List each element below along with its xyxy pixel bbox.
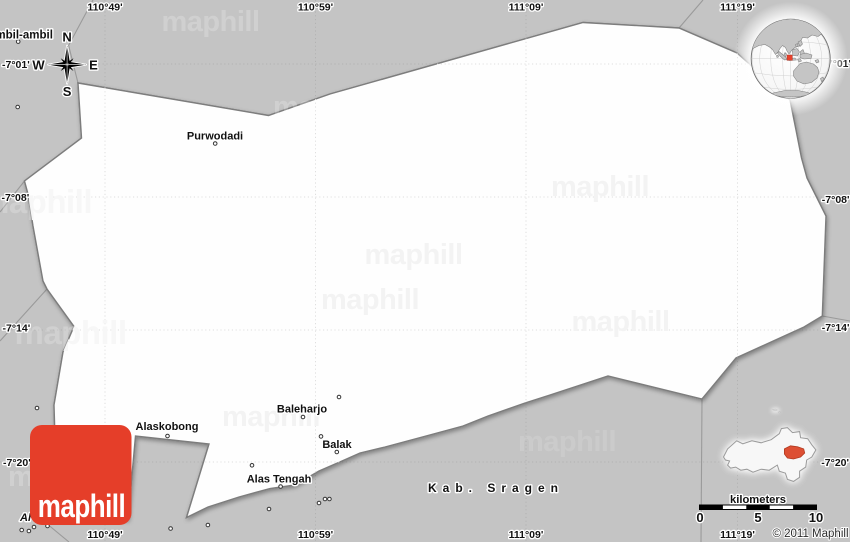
svg-text:Alaskobong: Alaskobong <box>136 421 199 433</box>
svg-text:5: 5 <box>754 510 761 525</box>
svg-text:maphill: maphill <box>273 91 371 123</box>
svg-text:maphill: maphill <box>321 284 419 316</box>
svg-text:111°09': 111°09' <box>509 2 544 14</box>
svg-text:S: S <box>63 84 72 99</box>
svg-text:-7°20': -7°20' <box>3 457 31 469</box>
svg-text:Balak: Balak <box>322 439 352 451</box>
svg-text:-7°20': -7°20' <box>821 457 849 469</box>
svg-text:ambil-ambil: ambil-ambil <box>0 30 53 42</box>
svg-text:110°49': 110°49' <box>87 2 122 14</box>
svg-text:0: 0 <box>696 510 703 525</box>
svg-text:maphill: maphill <box>38 488 125 524</box>
svg-text:111°19': 111°19' <box>720 529 755 541</box>
svg-text:Purwodadi: Purwodadi <box>187 131 243 143</box>
svg-text:Alas Tengah: Alas Tengah <box>247 474 312 486</box>
svg-text:110°59': 110°59' <box>298 529 333 541</box>
svg-text:Al: Al <box>19 512 32 524</box>
svg-text:maphill: maphill <box>551 171 649 203</box>
svg-text:10: 10 <box>809 510 823 525</box>
svg-text:maphill: maphill <box>518 426 616 458</box>
svg-text:N: N <box>62 30 71 45</box>
svg-text:© 2011 Maphill: © 2011 Maphill <box>772 528 848 540</box>
svg-text:maphill: maphill <box>161 6 259 38</box>
svg-text:-7°01': -7°01' <box>2 59 30 71</box>
svg-text:-7°14': -7°14' <box>3 323 31 335</box>
svg-text:110°59': 110°59' <box>298 2 333 14</box>
svg-text:maphill: maphill <box>14 314 126 351</box>
svg-text:111°19': 111°19' <box>720 2 755 14</box>
svg-text:E: E <box>89 58 98 73</box>
svg-text:Baleharjo: Baleharjo <box>277 404 327 416</box>
svg-text:110°49': 110°49' <box>87 529 122 541</box>
svg-text:maphill: maphill <box>571 306 669 338</box>
svg-text:maphill: maphill <box>364 239 462 271</box>
svg-text:-7°14': -7°14' <box>822 322 850 334</box>
svg-text:-7°08': -7°08' <box>822 194 850 206</box>
svg-text:Kab. Sragen: Kab. Sragen <box>428 481 564 495</box>
svg-text:111°09': 111°09' <box>509 529 544 541</box>
svg-text:-7°08': -7°08' <box>2 192 30 204</box>
svg-text:kilometers: kilometers <box>730 494 786 506</box>
svg-text:W: W <box>32 58 45 73</box>
